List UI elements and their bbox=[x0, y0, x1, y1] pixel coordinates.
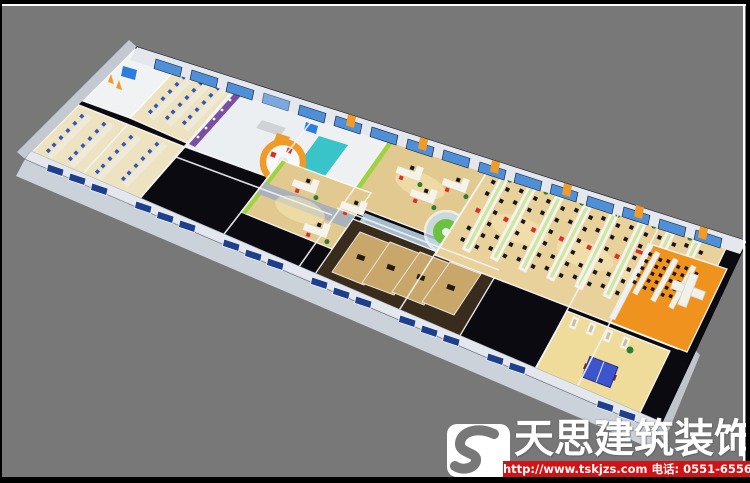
render-canvas bbox=[0, 0, 750, 483]
frame-right-line bbox=[743, 6, 745, 461]
frame-left bbox=[0, 0, 2, 483]
brand-name: 天思建筑装饰 bbox=[514, 417, 750, 461]
frame-top-line bbox=[0, 4, 750, 6]
company-logo bbox=[447, 424, 510, 477]
frame-right bbox=[746, 0, 750, 461]
contact-bar: http://www.tskjzs.com 电话: 0551-65568226 bbox=[503, 461, 750, 477]
frame-bottom bbox=[0, 477, 750, 483]
s-monogram-icon bbox=[447, 424, 510, 477]
